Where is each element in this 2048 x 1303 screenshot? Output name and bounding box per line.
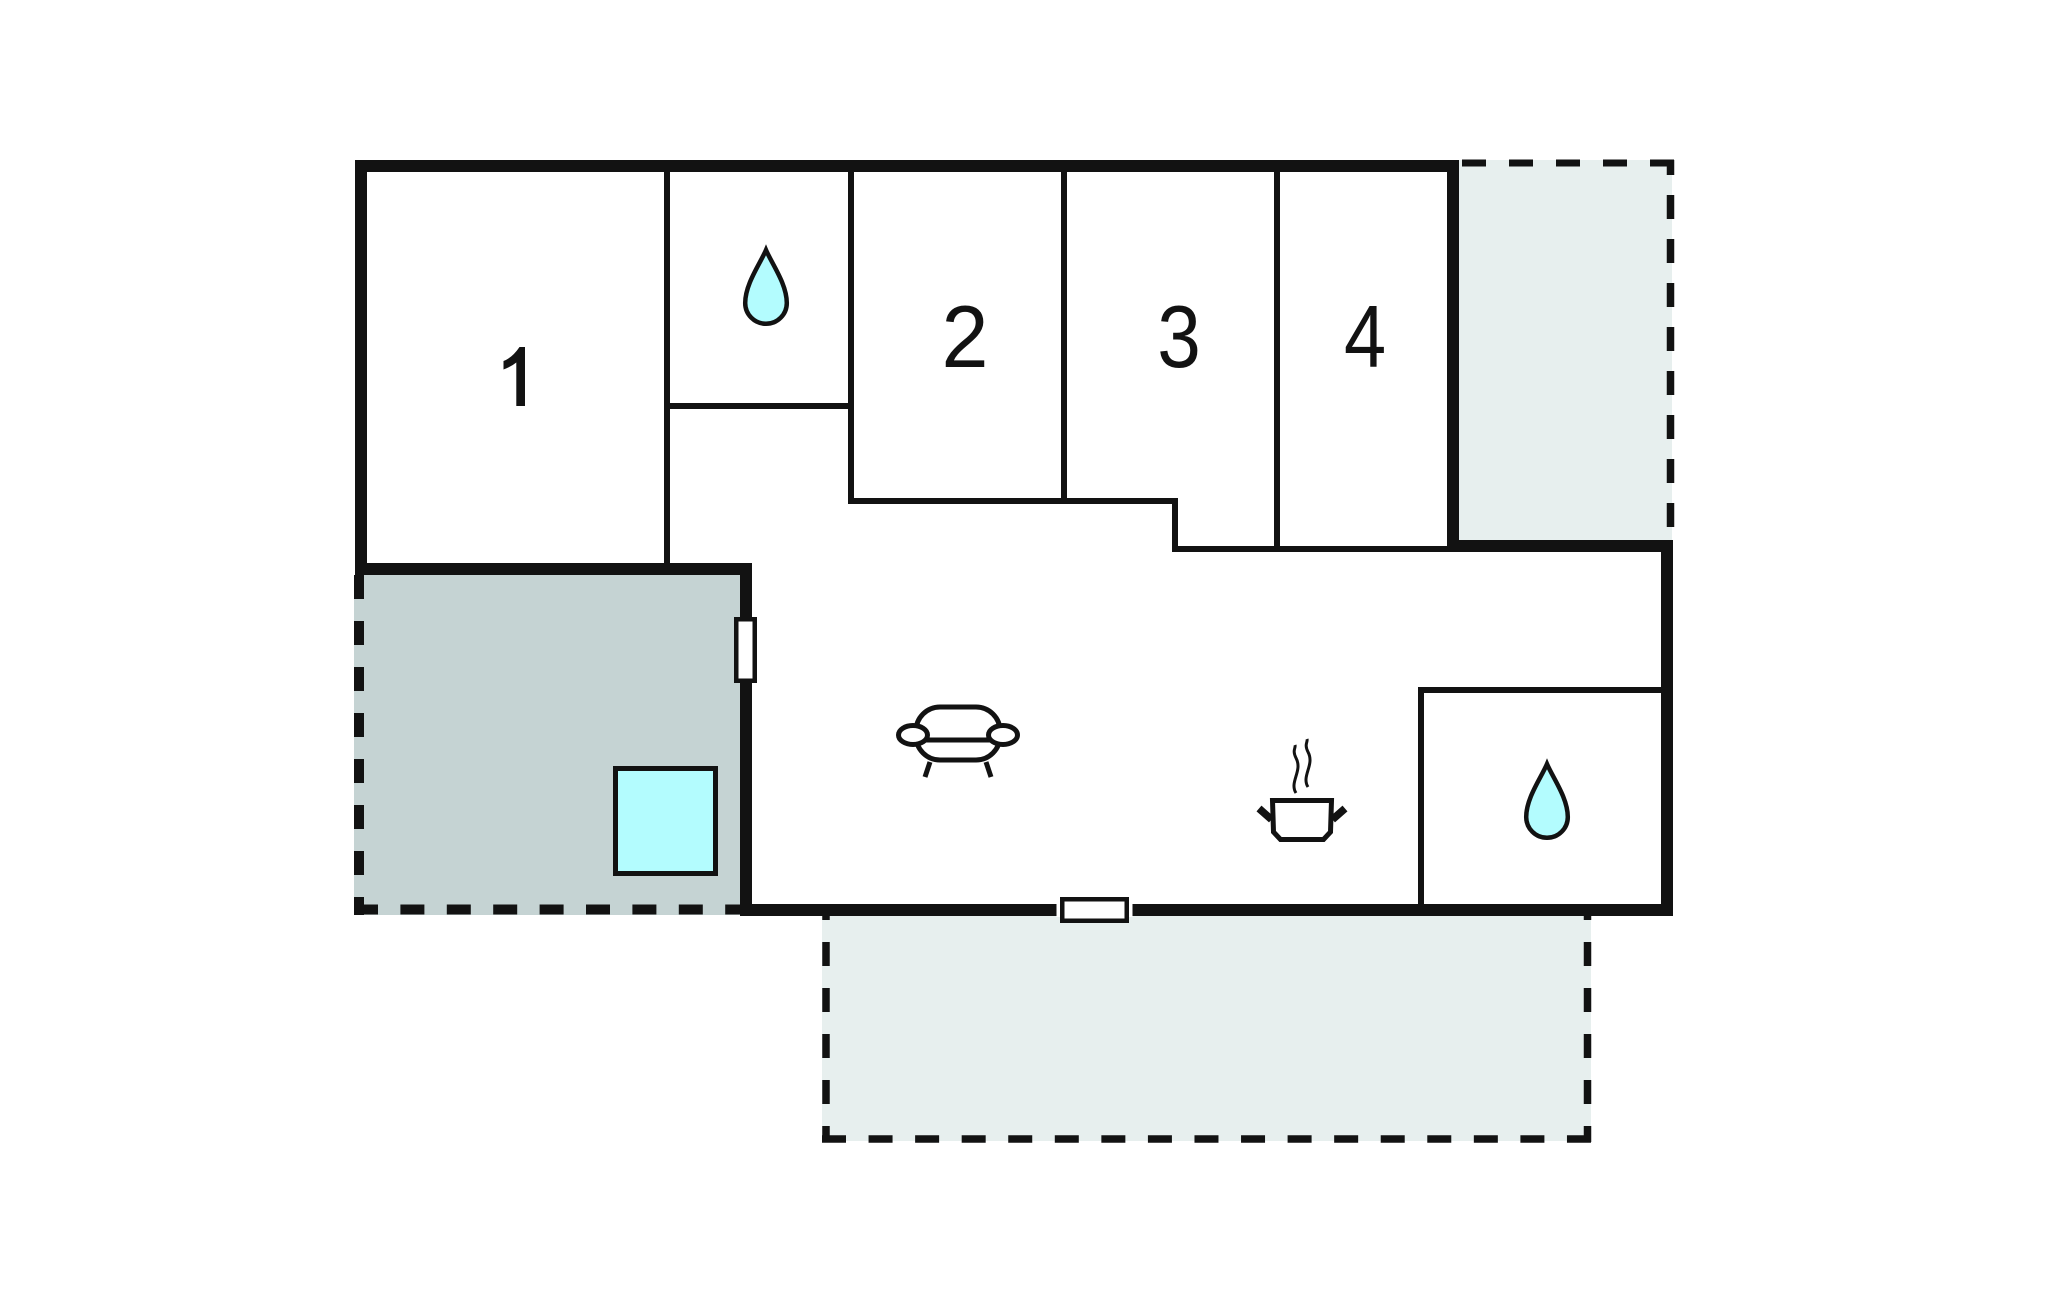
svg-text:2: 2 [942, 288, 989, 386]
svg-text:4: 4 [1344, 289, 1386, 387]
svg-text:3: 3 [1157, 288, 1201, 386]
